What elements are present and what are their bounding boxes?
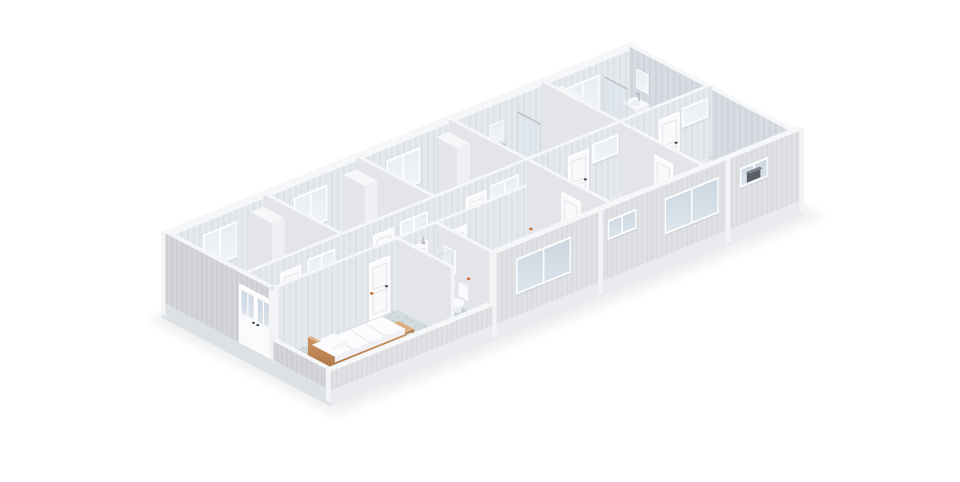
door-stop-3	[370, 292, 374, 295]
floorplan-render	[0, 0, 960, 482]
door-stop-1	[467, 277, 471, 280]
isometric-building-svg	[0, 0, 960, 482]
door-stop-2	[529, 228, 533, 231]
